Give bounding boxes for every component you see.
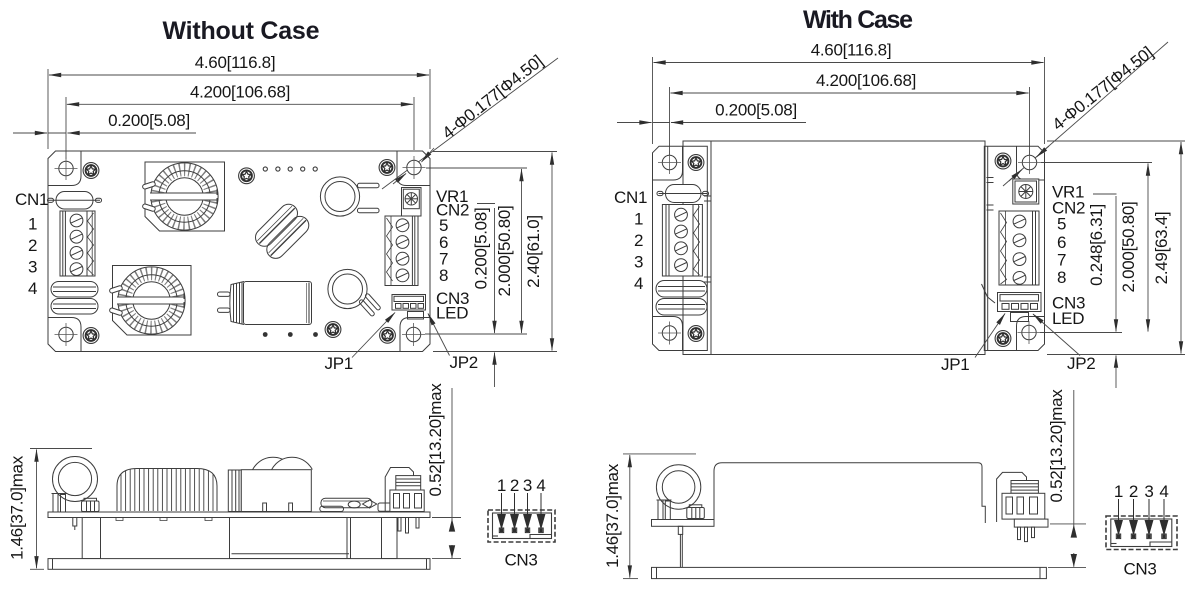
- svg-text:JP2: JP2: [450, 353, 478, 372]
- svg-text:4: 4: [634, 274, 643, 293]
- svg-text:2: 2: [28, 236, 37, 255]
- svg-text:6: 6: [1057, 233, 1066, 252]
- svg-text:3: 3: [634, 253, 643, 272]
- svg-text:2: 2: [634, 231, 643, 250]
- svg-text:4.60[116.8]: 4.60[116.8]: [811, 41, 892, 60]
- svg-text:4: 4: [536, 476, 545, 495]
- svg-text:3: 3: [28, 258, 37, 277]
- svg-text:2.000[50.80]: 2.000[50.80]: [1119, 202, 1138, 293]
- svg-text:0.52[13.20]max: 0.52[13.20]max: [426, 383, 445, 497]
- svg-text:1: 1: [1114, 482, 1123, 501]
- svg-text:With Case: With Case: [803, 6, 913, 34]
- svg-text:JP2: JP2: [1067, 354, 1095, 373]
- svg-text:0.200[5.08]: 0.200[5.08]: [108, 111, 190, 130]
- svg-text:2: 2: [1129, 482, 1138, 501]
- svg-text:LED: LED: [1052, 309, 1084, 328]
- svg-text:1.46[37.0]max: 1.46[37.0]max: [603, 463, 622, 568]
- svg-text:4.60[116.8]: 4.60[116.8]: [195, 53, 276, 72]
- svg-text:5: 5: [1057, 215, 1066, 234]
- svg-text:1: 1: [497, 476, 506, 495]
- svg-text:CN3: CN3: [1123, 560, 1156, 579]
- svg-text:4: 4: [28, 279, 37, 298]
- svg-text:8: 8: [439, 266, 448, 285]
- svg-text:0.52[13.20]max: 0.52[13.20]max: [1047, 389, 1066, 503]
- svg-text:0.200[5.08]: 0.200[5.08]: [472, 208, 491, 290]
- svg-text:0.248[6.31]: 0.248[6.31]: [1087, 204, 1106, 286]
- svg-text:JP1: JP1: [941, 355, 969, 374]
- svg-text:8: 8: [1057, 268, 1066, 287]
- svg-text:4.200[106.68]: 4.200[106.68]: [190, 83, 290, 102]
- svg-text:1: 1: [28, 215, 37, 234]
- svg-text:LED: LED: [436, 304, 468, 323]
- svg-text:7: 7: [1057, 251, 1066, 270]
- svg-text:3: 3: [523, 476, 532, 495]
- svg-text:4: 4: [1159, 482, 1168, 501]
- svg-text:CN1: CN1: [614, 188, 647, 207]
- svg-text:2.000[50.80]: 2.000[50.80]: [495, 206, 514, 297]
- svg-text:1.46[37.0]max: 1.46[37.0]max: [8, 455, 27, 560]
- svg-text:JP1: JP1: [325, 354, 353, 373]
- svg-text:1: 1: [634, 210, 643, 229]
- svg-text:2.49[63.4]: 2.49[63.4]: [1152, 212, 1171, 285]
- svg-text:0.200[5.08]: 0.200[5.08]: [715, 101, 797, 120]
- svg-text:3: 3: [1144, 482, 1153, 501]
- svg-text:CN1: CN1: [15, 190, 48, 209]
- svg-text:Without Case: Without Case: [163, 17, 320, 45]
- svg-text:2.40[61.0]: 2.40[61.0]: [524, 215, 543, 288]
- svg-text:CN3: CN3: [504, 551, 537, 570]
- svg-text:2: 2: [510, 476, 519, 495]
- svg-text:4.200[106.68]: 4.200[106.68]: [816, 71, 916, 90]
